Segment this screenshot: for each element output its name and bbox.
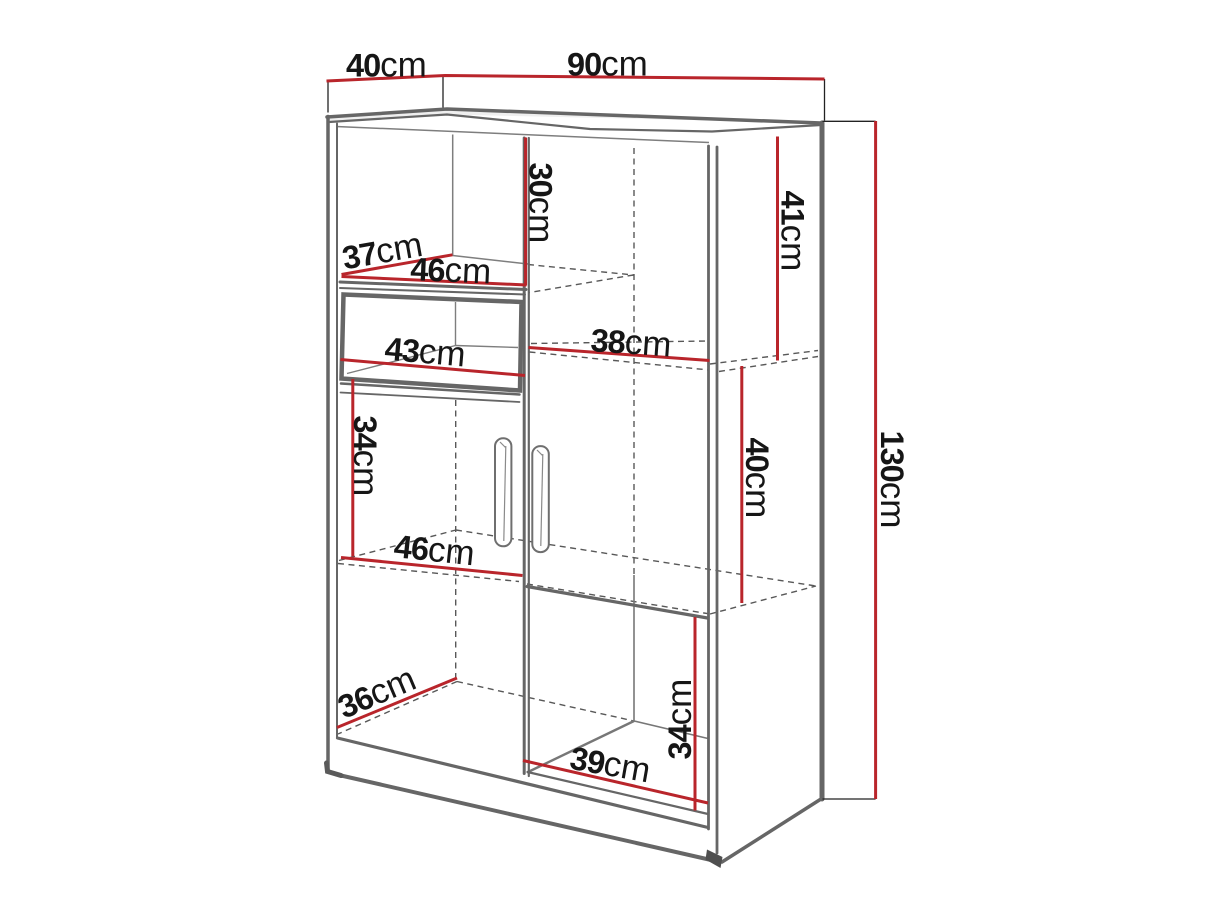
svg-text:40cm: 40cm: [738, 438, 777, 519]
svg-text:130cm: 130cm: [873, 431, 912, 529]
svg-text:41cm: 41cm: [774, 191, 813, 272]
svg-text:90cm: 90cm: [567, 45, 648, 84]
svg-text:38cm: 38cm: [589, 320, 672, 365]
svg-text:34cm: 34cm: [346, 416, 385, 497]
svg-text:34cm: 34cm: [660, 679, 699, 760]
svg-text:46cm: 46cm: [410, 249, 492, 291]
svg-text:30cm: 30cm: [522, 163, 561, 244]
svg-text:40cm: 40cm: [346, 46, 427, 85]
